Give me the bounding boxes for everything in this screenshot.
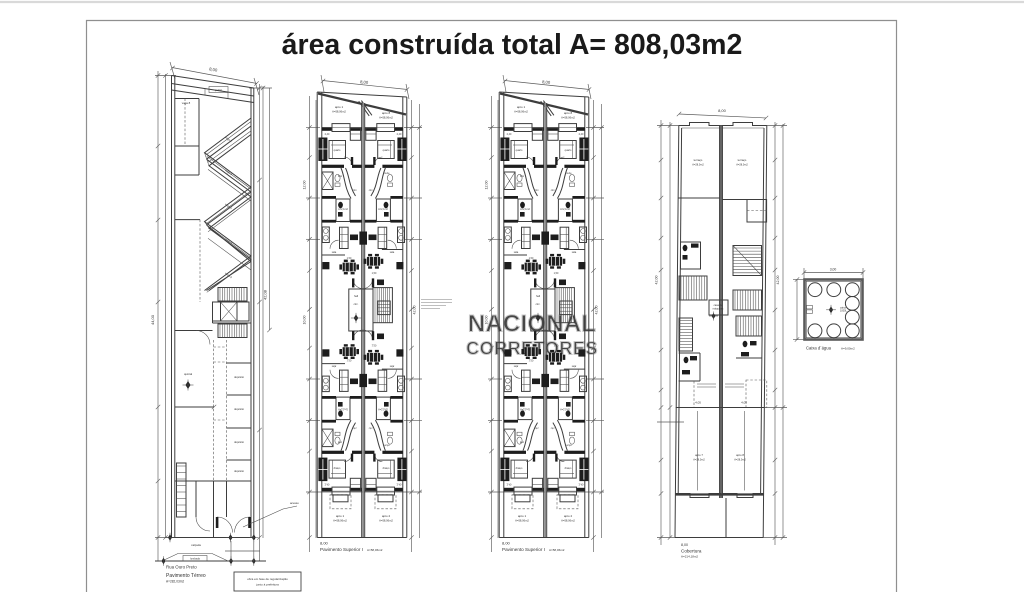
- svg-text:4,05: 4,05: [695, 401, 701, 405]
- svg-text:1,50: 1,50: [347, 257, 352, 260]
- svg-text:terraço: terraço: [694, 158, 703, 162]
- svg-text:depósito: depósito: [234, 407, 244, 411]
- svg-text:quintal: quintal: [184, 372, 193, 376]
- svg-text:sala: sala: [332, 251, 337, 254]
- svg-text:quarto: quarto: [383, 149, 390, 152]
- svg-text:42,00: 42,00: [413, 306, 417, 315]
- svg-text:Pavimento Térreo: Pavimento Térreo: [166, 573, 206, 579]
- svg-text:depósito: depósito: [234, 469, 244, 473]
- svg-text:A=58,06m2: A=58,06m2: [367, 548, 383, 552]
- svg-text:área construída total A= 808,0: área construída total A= 808,03m2: [282, 29, 743, 61]
- svg-text:hall: hall: [354, 294, 358, 298]
- svg-text:8,00: 8,00: [360, 79, 369, 85]
- svg-text:terraço: terraço: [738, 158, 747, 162]
- svg-text:depósito: depósito: [234, 375, 244, 379]
- svg-text:A=28,0m2: A=28,0m2: [692, 164, 704, 167]
- svg-text:sala: sala: [390, 251, 395, 254]
- svg-text:quarto: quarto: [334, 149, 341, 152]
- svg-text:4,05: 4,05: [741, 401, 747, 405]
- svg-text:A=9,00m2: A=9,00m2: [841, 347, 855, 351]
- svg-text:circ.: circ.: [354, 302, 359, 306]
- svg-text:42,00: 42,00: [776, 276, 780, 285]
- svg-text:junto à prefeitura: junto à prefeitura: [255, 583, 279, 587]
- svg-text:apto 1: apto 1: [336, 514, 345, 518]
- svg-text:A=28,0m2: A=28,0m2: [734, 459, 746, 462]
- svg-text:lombada: lombada: [190, 558, 200, 561]
- svg-text:apto 8: apto 8: [736, 453, 744, 457]
- svg-text:44,00: 44,00: [150, 314, 155, 325]
- svg-text:máquinas: máquinas: [713, 308, 725, 311]
- svg-text:A=2,1m2: A=2,1m2: [338, 208, 348, 211]
- svg-text:8,00: 8,00: [718, 108, 727, 113]
- svg-text:10,00: 10,00: [303, 316, 307, 325]
- svg-text:vaga 8: vaga 8: [182, 101, 191, 105]
- svg-text:2,40: 2,40: [325, 133, 330, 136]
- svg-text:Caixa d´água: Caixa d´água: [806, 346, 832, 351]
- svg-text:A=282,03m2: A=282,03m2: [166, 580, 184, 584]
- svg-text:acesso: acesso: [290, 501, 299, 505]
- svg-text:circ.: circ.: [369, 189, 374, 192]
- svg-text:8,00: 8,00: [681, 543, 688, 547]
- svg-text:A=28,0m2: A=28,0m2: [736, 164, 748, 167]
- svg-text:depósito: depósito: [234, 440, 244, 444]
- svg-text:A=2,1m2: A=2,1m2: [378, 208, 388, 211]
- svg-text:A=58,06m2: A=58,06m2: [333, 519, 347, 523]
- svg-text:3,00: 3,00: [830, 268, 837, 272]
- svg-text:A=214,18m2: A=214,18m2: [681, 555, 698, 559]
- svg-text:apto 7: apto 7: [695, 453, 703, 457]
- svg-text:42,08: 42,08: [263, 289, 268, 300]
- svg-text:42,00: 42,00: [655, 276, 659, 285]
- svg-text:calçada: calçada: [191, 543, 201, 547]
- svg-text:8,00: 8,00: [320, 541, 329, 546]
- svg-text:portão: portão: [215, 88, 223, 92]
- svg-text:A=58,06m2: A=58,06m2: [332, 110, 346, 114]
- svg-text:obra em fase de regularização: obra em fase de regularização: [247, 577, 288, 581]
- svg-text:apto 2: apto 2: [382, 514, 391, 518]
- svg-text:Rua Ouro Preto: Rua Ouro Preto: [166, 565, 197, 570]
- svg-text:2,40: 2,40: [397, 133, 402, 136]
- svg-text:12,00: 12,00: [303, 181, 307, 190]
- svg-text:A=58,06m2: A=58,06m2: [379, 116, 393, 120]
- svg-text:apto 1: apto 1: [335, 105, 344, 109]
- svg-text:A=58,06m2: A=58,06m2: [379, 519, 393, 523]
- svg-text:Cobertura: Cobertura: [681, 549, 702, 554]
- svg-text:1000L: 1000L: [840, 310, 848, 313]
- svg-text:Pavimento Superior I: Pavimento Superior I: [320, 547, 363, 552]
- svg-text:1,50: 1,50: [372, 272, 377, 275]
- svg-text:A=28,0m2: A=28,0m2: [693, 459, 705, 462]
- svg-text:suíte: suíte: [384, 172, 390, 175]
- svg-text:apto 8: apto 8: [382, 111, 391, 115]
- svg-text:circ.: circ.: [353, 189, 358, 192]
